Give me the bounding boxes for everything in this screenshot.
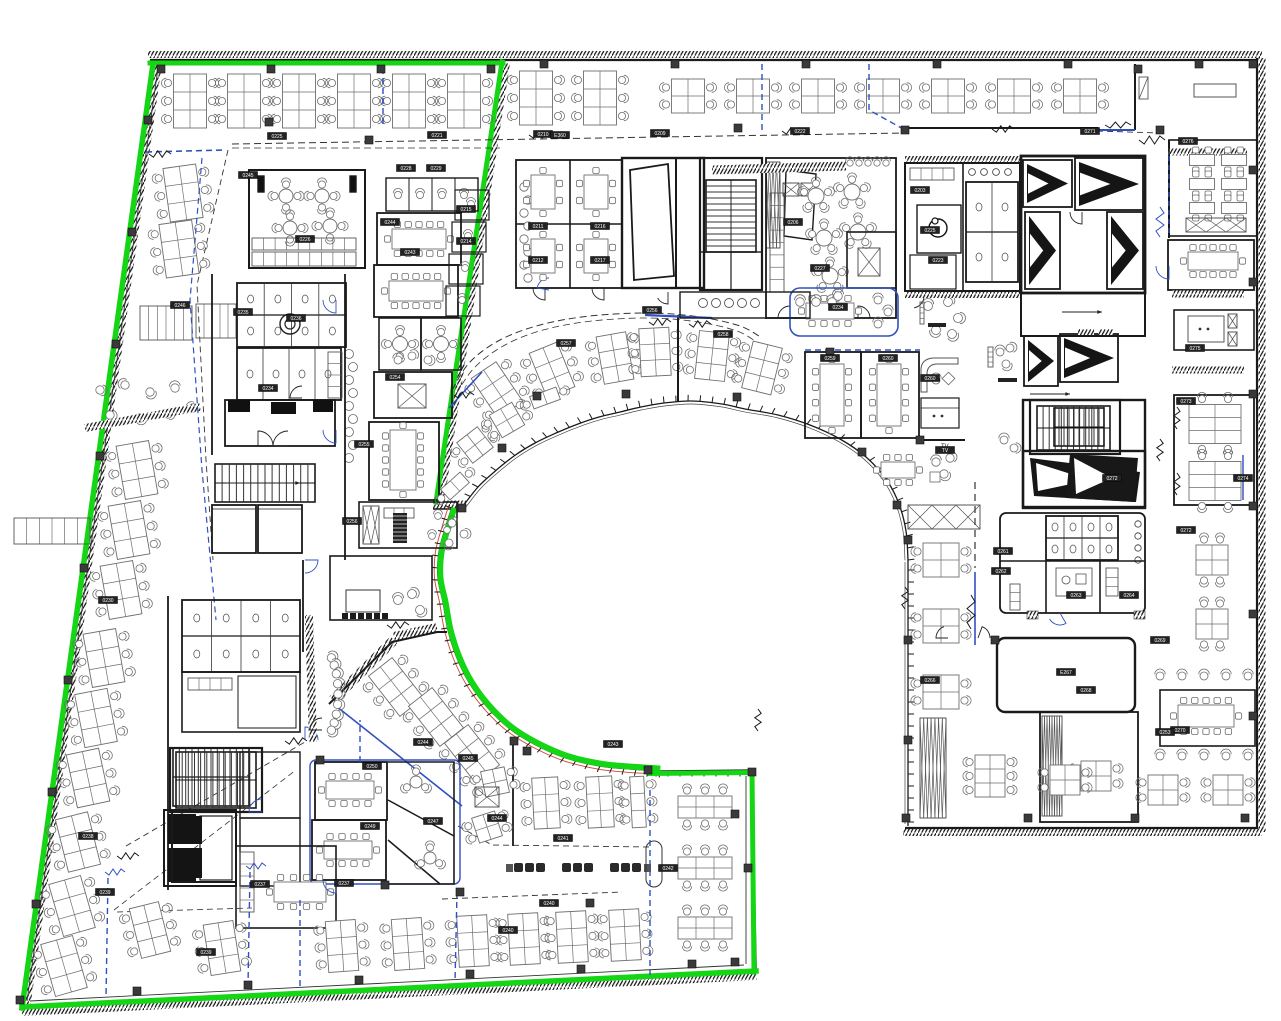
svg-text:0270: 0270	[1174, 728, 1185, 734]
svg-text:0225: 0225	[924, 228, 935, 234]
svg-text:E360: E360	[554, 133, 566, 139]
svg-text:0271: 0271	[1084, 129, 1095, 135]
svg-text:0246: 0246	[174, 303, 185, 309]
svg-text:0212: 0212	[532, 258, 543, 264]
svg-text:0250: 0250	[366, 764, 377, 770]
svg-text:0236: 0236	[290, 316, 301, 322]
svg-text:0245: 0245	[242, 173, 253, 179]
svg-text:0243: 0243	[404, 250, 415, 256]
svg-text:0257: 0257	[560, 341, 571, 347]
svg-text:0238: 0238	[82, 834, 93, 840]
svg-text:0237: 0237	[254, 882, 265, 888]
svg-text:0226: 0226	[299, 237, 310, 243]
svg-text:0222: 0222	[794, 129, 805, 135]
svg-text:0260: 0260	[924, 376, 935, 382]
svg-text:0263: 0263	[1070, 593, 1081, 599]
svg-text:0268: 0268	[1080, 688, 1091, 694]
svg-text:0240: 0240	[543, 901, 554, 907]
svg-text:0244: 0244	[491, 816, 502, 822]
svg-text:0239: 0239	[99, 890, 110, 896]
svg-text:0276: 0276	[1182, 139, 1193, 145]
svg-text:0272: 0272	[1180, 528, 1191, 534]
svg-text:TV: TV	[942, 448, 949, 454]
svg-text:0211: 0211	[533, 224, 544, 230]
svg-text:0223: 0223	[932, 258, 943, 264]
svg-text:0237: 0237	[338, 881, 349, 887]
svg-text:0228: 0228	[400, 166, 411, 172]
svg-text:0217: 0217	[594, 258, 605, 264]
svg-text:0247: 0247	[427, 819, 438, 825]
svg-text:0255: 0255	[358, 442, 369, 448]
svg-text:0210: 0210	[537, 132, 548, 138]
svg-text:E267: E267	[1060, 670, 1072, 676]
svg-text:0235: 0235	[237, 310, 248, 316]
svg-text:0254: 0254	[389, 375, 400, 381]
svg-text:0209: 0209	[654, 131, 665, 137]
svg-text:0256: 0256	[646, 308, 657, 314]
svg-text:0258: 0258	[717, 332, 728, 338]
svg-text:0234: 0234	[262, 386, 273, 392]
svg-text:0239: 0239	[200, 950, 211, 956]
svg-text:0229: 0229	[430, 166, 441, 172]
svg-text:0266: 0266	[924, 678, 935, 684]
svg-text:0240: 0240	[502, 928, 513, 934]
svg-text:0203: 0203	[914, 188, 925, 194]
svg-text:0256: 0256	[346, 519, 357, 525]
svg-text:0249: 0249	[364, 824, 375, 830]
svg-text:0245: 0245	[462, 756, 473, 762]
svg-text:0253: 0253	[1159, 730, 1170, 736]
svg-text:0261: 0261	[997, 549, 1008, 555]
svg-text:0262: 0262	[995, 569, 1006, 575]
svg-text:0273: 0273	[1180, 399, 1191, 405]
svg-text:0215: 0215	[460, 207, 471, 213]
svg-text:0216: 0216	[594, 224, 605, 230]
svg-text:0214: 0214	[460, 239, 471, 245]
svg-text:0269: 0269	[1154, 638, 1165, 644]
svg-text:0272: 0272	[1106, 476, 1117, 482]
svg-text:0230: 0230	[102, 598, 113, 604]
svg-text:0264: 0264	[1123, 593, 1134, 599]
svg-text:0275: 0275	[1189, 346, 1200, 352]
svg-text:0274: 0274	[1237, 476, 1248, 482]
svg-text:0260: 0260	[882, 356, 893, 362]
svg-text:0244: 0244	[384, 220, 395, 226]
svg-text:0225: 0225	[271, 134, 282, 140]
svg-text:0259: 0259	[824, 356, 835, 362]
svg-text:0241: 0241	[557, 836, 568, 842]
svg-text:0234: 0234	[832, 305, 843, 311]
svg-text:0227: 0227	[814, 266, 825, 272]
svg-text:0244: 0244	[417, 740, 428, 746]
svg-text:0243: 0243	[607, 742, 618, 748]
svg-text:0206: 0206	[787, 220, 798, 226]
svg-text:0242: 0242	[662, 866, 673, 872]
svg-text:0221: 0221	[431, 133, 442, 139]
